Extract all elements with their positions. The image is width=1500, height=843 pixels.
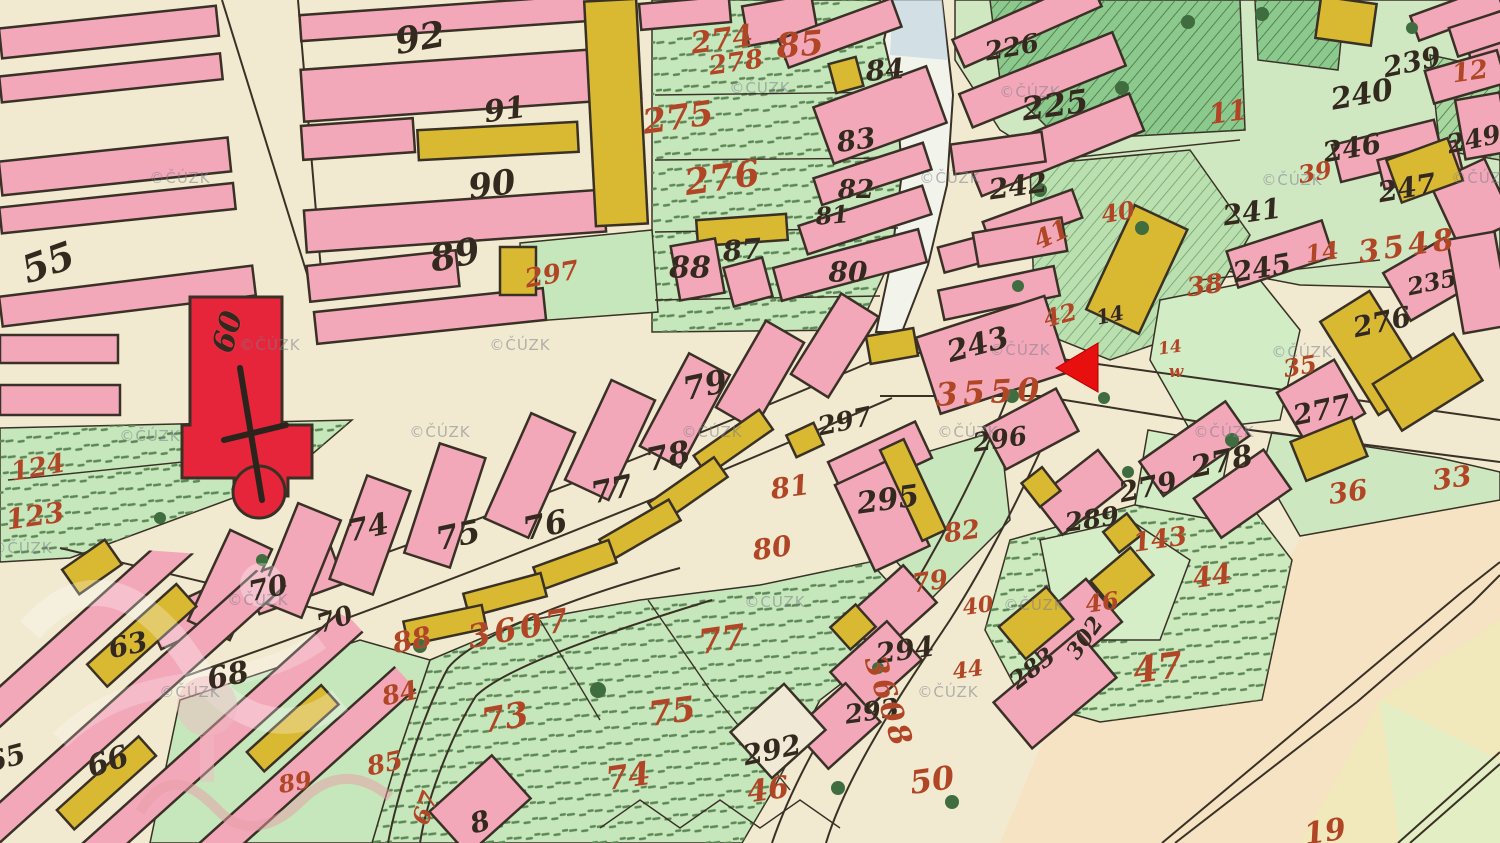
map-canvas: [0, 0, 1500, 843]
cadastral-map[interactable]: ©ČÚZK©ČÚZK©ČÚZK©ČÚZK©ČÚZK©ČÚZK©ČÚZK©ČÚZK…: [0, 0, 1500, 843]
